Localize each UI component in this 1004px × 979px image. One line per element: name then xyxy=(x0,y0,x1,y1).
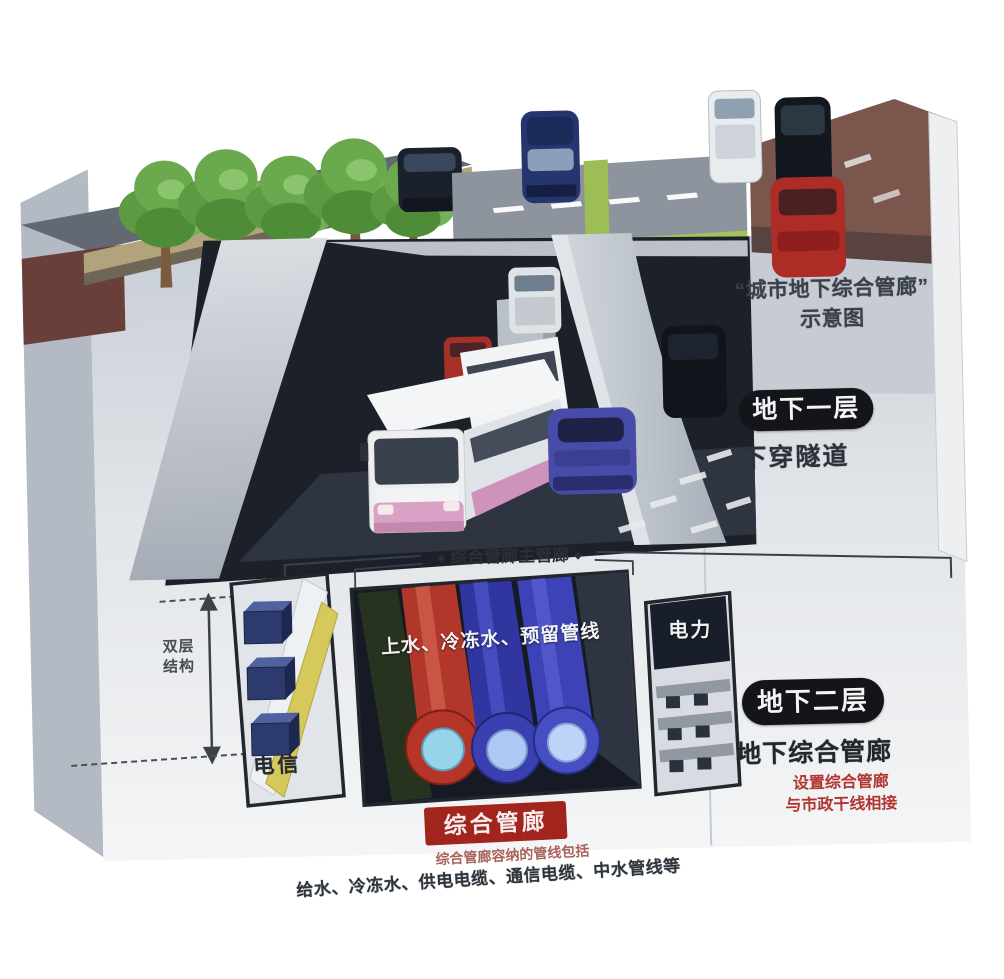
level2-name: 地下综合管廊 xyxy=(736,731,893,771)
cable-blocks xyxy=(244,601,300,756)
measure-line1: 双层 xyxy=(150,637,206,658)
blue-car-tunnel xyxy=(547,407,637,495)
white-van-tunnel xyxy=(508,267,561,334)
level1-badge: 地下一层 xyxy=(739,388,874,432)
footer-badge: 综合管廊 xyxy=(424,801,568,846)
level2-badge: 地下二层 xyxy=(742,677,885,725)
red-car xyxy=(770,176,846,278)
scene: “城市地下综合管廊” 示意图 地下一层 下穿隧道 ◆ 综合管廊主管廊 ◆ 双层 … xyxy=(0,0,1004,979)
white-van xyxy=(708,90,762,183)
gallery-header-label: 综合管廊主管廊 xyxy=(450,546,569,568)
power-label: 电力 xyxy=(658,613,723,643)
infographic: “城市地下综合管廊” 示意图 地下一层 下穿隧道 ◆ 综合管廊主管廊 ◆ 双层 … xyxy=(0,0,1004,979)
tunnel-level xyxy=(121,228,757,586)
diagram-title: “城市地下综合管廊” 示意图 xyxy=(702,272,961,339)
blue-car-deck xyxy=(521,110,581,203)
level2-note-line2: 与市政干线相接 xyxy=(743,792,939,818)
water-compartment xyxy=(351,571,640,805)
level2-note: 设置综合管廊 与市政干线相接 xyxy=(743,770,940,818)
left-arrow-cap-icon: ◆ xyxy=(437,552,446,564)
dark-car-tunnel xyxy=(661,325,727,418)
diagram-title-line2: 示意图 xyxy=(703,302,962,338)
level1-name: 下穿隧道 xyxy=(741,436,850,474)
measure-line2: 结构 xyxy=(151,656,207,677)
right-arrow-cap-icon: ◆ xyxy=(574,549,583,561)
structure-measure-label: 双层 结构 xyxy=(150,637,207,677)
gallery-header: ◆ 综合管廊主管廊 ◆ xyxy=(406,540,613,570)
diagram-title-line1: “城市地下综合管廊” xyxy=(702,272,961,308)
telecom-label: 电信 xyxy=(252,748,302,781)
